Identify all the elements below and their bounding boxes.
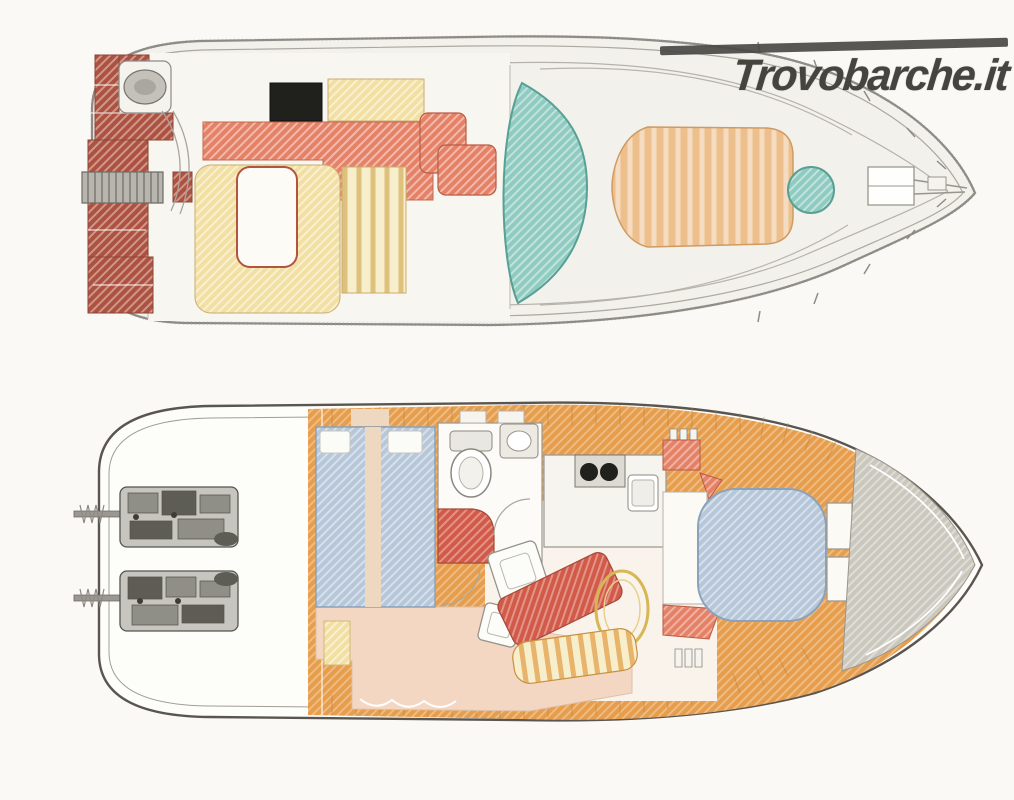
galley-sink-basin [632, 480, 654, 506]
seat-cushion [324, 621, 350, 665]
platform-section [88, 140, 148, 173]
engine-part [128, 577, 162, 599]
toilet-tank [450, 431, 492, 451]
cockpit-bench [328, 79, 424, 121]
bow-stowage-area [842, 449, 975, 671]
engine-part [200, 495, 230, 513]
engine-part [162, 491, 196, 515]
watermark: Trovobarche.it [642, 42, 1008, 98]
engine-detail [175, 598, 181, 604]
toilet-bowl-inner [459, 457, 483, 489]
engine-part [128, 493, 158, 513]
stove-burner [600, 463, 618, 481]
engine-detail [171, 512, 177, 518]
bow-stowage [842, 449, 975, 671]
grill-hatch [270, 83, 322, 121]
window-slot [498, 411, 524, 423]
boarding-ladder [82, 172, 163, 203]
head-sink [507, 431, 531, 451]
berth-pillow [388, 431, 422, 453]
headboard-shelf [351, 409, 389, 426]
anchor-roller [928, 177, 946, 190]
berth-pillow [320, 431, 350, 453]
engine-part [132, 605, 178, 625]
foredeck-sunpad [612, 127, 793, 247]
engine-manifold [214, 572, 238, 586]
platform-section [95, 55, 119, 113]
v-berth [698, 489, 826, 621]
cockpit-table [237, 167, 297, 267]
window-slot [460, 411, 486, 423]
engine-detail [133, 514, 139, 520]
vent-slat [695, 649, 702, 667]
vent-slat [675, 649, 682, 667]
stove-burner [580, 463, 598, 481]
bow-hatch [788, 167, 834, 213]
engine-detail [137, 598, 143, 604]
berth-divider [365, 427, 381, 607]
helm-seat [438, 145, 496, 195]
engine-part [182, 605, 224, 623]
wardrobe [663, 440, 700, 470]
side-shelf [827, 503, 852, 549]
scanned-boat-layout-page: Trovobarche.it [0, 0, 1014, 800]
engine-part [130, 521, 172, 539]
platform-section [95, 113, 173, 140]
sun-lounger-bench [342, 167, 406, 293]
lower-deck-plan [70, 393, 995, 733]
watermark-text: Trovobarche.it [651, 54, 1011, 98]
vent-slat [685, 649, 692, 667]
liferaft-locker [119, 61, 171, 113]
engine-part [166, 577, 196, 597]
head-bench [438, 509, 494, 563]
engine-manifold [214, 532, 238, 546]
liferaft-icon-inner [134, 79, 156, 95]
